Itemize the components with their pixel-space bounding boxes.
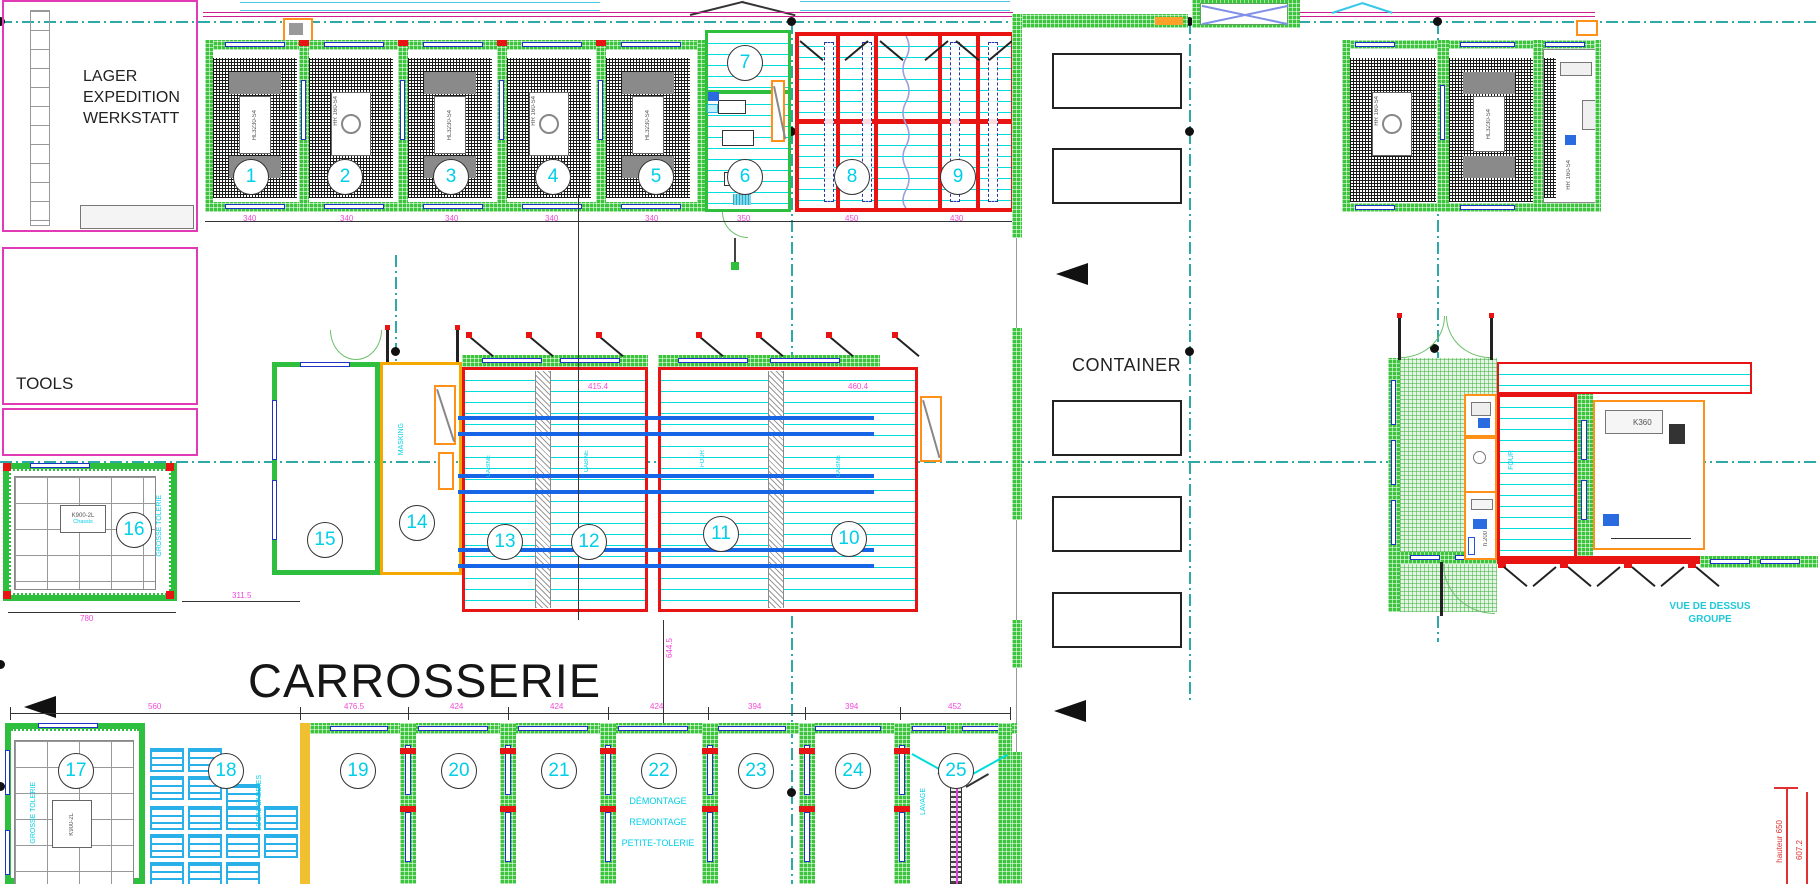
flex-wall-icon (899, 36, 913, 208)
wheel-icon (1382, 114, 1402, 134)
window (1581, 420, 1587, 460)
conveyor-rail (458, 432, 874, 436)
vehicle-lift (1463, 156, 1515, 178)
window (912, 726, 946, 731)
station-number: 11 (711, 523, 731, 545)
dimension-text: 560 (148, 703, 161, 711)
station-number: 21 (548, 760, 569, 782)
door-post-tip (385, 325, 390, 330)
printer-icon (1473, 519, 1487, 529)
station-number: 2 (340, 166, 351, 188)
door-mark (699, 336, 723, 357)
bay-25-right-wall (998, 723, 1012, 884)
wall-left (205, 40, 213, 212)
rs-wall-left (1342, 40, 1350, 212)
dimension-tick (805, 707, 806, 720)
window (1760, 559, 1800, 564)
table (80, 205, 194, 229)
workbench (438, 452, 454, 490)
dimension-text: 424 (650, 703, 663, 711)
window (1391, 500, 1396, 545)
rs-top-room (1497, 362, 1752, 394)
wall-tie (166, 591, 174, 599)
dimension-text: 340 (545, 215, 558, 223)
grid-node-dot (1185, 127, 1194, 136)
caddy-rack (150, 776, 184, 800)
station-number: 13 (494, 531, 515, 553)
vehicle-lift (229, 72, 281, 94)
panel-stand (771, 80, 785, 142)
wash-lane-grate (950, 786, 962, 884)
height-label: h.200 (1483, 531, 1489, 546)
container-box (1052, 592, 1182, 648)
caddy-rack (150, 862, 184, 884)
window (804, 812, 810, 862)
wheel-icon (539, 114, 559, 134)
fence-wall (1012, 620, 1022, 668)
caddy-rack (226, 806, 260, 830)
station-number: 18 (215, 760, 236, 782)
container-area-label: CONTAINER (1072, 355, 1181, 376)
window (1545, 42, 1585, 47)
station-25: 25 (938, 753, 974, 789)
wall-tie (702, 806, 718, 812)
station-6: 6 (727, 159, 763, 195)
wall-tie (702, 748, 718, 754)
wall-tie (596, 40, 606, 46)
door-mark (469, 336, 493, 357)
station-24: 24 (835, 753, 871, 789)
grid-node-dot (1433, 17, 1442, 26)
door-mark (1567, 566, 1591, 587)
dimension-text: 460.4 (848, 383, 868, 391)
dimension-line (8, 612, 176, 613)
room-small-wall (2, 408, 198, 456)
dimension-text: 340 (645, 215, 658, 223)
dimension-text: 424 (550, 703, 563, 711)
door-mark-tip (526, 332, 532, 338)
label-line: WERKSTATT (83, 108, 180, 129)
door-mark (1631, 566, 1655, 587)
caddy-rack (226, 834, 260, 858)
container-box (1052, 400, 1182, 456)
grid-node-dot (391, 347, 400, 356)
station-8: 8 (834, 159, 870, 195)
dimension-text-vertical: 644.5 (666, 638, 674, 658)
wheel-icon (341, 114, 361, 134)
fence-gate (1155, 17, 1183, 25)
window (330, 726, 388, 731)
lift-label: HL3230-S4 (252, 110, 258, 140)
rs-roof-equipment (1576, 20, 1598, 36)
dimension-text: 340 (340, 215, 353, 223)
dimension-text: 311.5 (232, 592, 251, 600)
window (1581, 480, 1587, 520)
door-leaf (734, 238, 736, 264)
desk (1560, 62, 1592, 76)
area-title-carrosserie: CARROSSERIE (248, 653, 601, 708)
zone-label-grosse-tolerie: GROSSE TOLERIE (156, 495, 163, 557)
station-13: 13 (487, 524, 523, 560)
station-number: 24 (842, 760, 863, 782)
equipment-item-dark (1669, 424, 1685, 444)
dimension-text-hauteur: hauteur 650 (1776, 820, 1784, 863)
window (272, 400, 277, 460)
station-number: 22 (648, 760, 669, 782)
lift-label: HR 160-S4 (333, 96, 339, 126)
dimension-line (205, 221, 1015, 222)
bench-diagonal (923, 400, 941, 458)
dimension-line-red (1786, 787, 1788, 884)
rs-mid-wall (1577, 394, 1593, 560)
station-number: 25 (945, 760, 966, 782)
grid-node-dot (0, 660, 5, 669)
caddy-rack (150, 748, 184, 772)
wall-tie (600, 806, 616, 812)
station-12: 12 (571, 524, 607, 560)
vehicle-lift (424, 72, 476, 94)
dimension-text: 394 (845, 703, 858, 711)
station-number: 1 (246, 166, 257, 188)
locker (1468, 537, 1475, 555)
dimension-tick (708, 707, 709, 720)
floor-plan: LAGER EXPEDITION WERKSTATT TOOLS HL32 (0, 0, 1818, 884)
window (30, 463, 90, 468)
section-line (663, 620, 664, 730)
fence-gate-line (1016, 668, 1017, 752)
dimension-line (182, 601, 300, 602)
window (5, 830, 10, 875)
window (423, 42, 483, 47)
lift-label: HL3230-S4 (645, 110, 651, 140)
rs-caption-line1: VUE DE DESSUS (1662, 602, 1758, 612)
fence-wall (1012, 14, 1022, 238)
wall-tie (799, 748, 815, 754)
dimension-tick (900, 707, 901, 720)
post-yellow (300, 723, 310, 884)
room-label-tools: TOOLS (16, 374, 73, 394)
zone-label-four: FOUR (1508, 450, 1515, 470)
rs-booth (1497, 394, 1577, 560)
caddy-rack (188, 862, 222, 884)
station-number: 10 (838, 528, 859, 550)
skylight-band (800, 1, 1010, 11)
rs-bay-divider (1533, 40, 1543, 212)
station-3: 3 (433, 159, 469, 195)
station-number: 9 (953, 166, 964, 188)
door-mark (759, 336, 783, 357)
station-number: 16 (123, 519, 144, 541)
dimension-tick (608, 707, 609, 720)
window (324, 42, 384, 47)
dimension-text: 350 (737, 215, 750, 223)
fence-gate-line (1016, 238, 1017, 328)
door-mark (1532, 566, 1556, 587)
fence-wall (1012, 752, 1022, 884)
door-swing-icon (330, 330, 356, 360)
lift-label: HR 160-S4 (1374, 96, 1380, 126)
dimension-tick (300, 707, 301, 720)
dimension-tick (508, 707, 509, 720)
station-20: 20 (441, 753, 477, 789)
window (1391, 440, 1396, 485)
rs-equip-room (1464, 394, 1497, 437)
station-number: 19 (347, 760, 368, 782)
station-4: 4 (535, 159, 571, 195)
station-2: 2 (327, 159, 363, 195)
label-line: EXPEDITION (83, 87, 180, 108)
wall-tie (398, 40, 408, 46)
station-16: 16 (116, 512, 152, 548)
station-14: 14 (399, 505, 435, 541)
wall-tie (166, 463, 174, 471)
printer-icon (708, 92, 719, 101)
wall-tie (400, 806, 416, 812)
equipment-box-roof (283, 18, 313, 42)
window (505, 812, 511, 862)
wall-tie (894, 748, 910, 754)
window (405, 812, 411, 862)
wall-tie (299, 40, 309, 46)
workbench (920, 396, 942, 462)
window (1460, 205, 1515, 210)
lift-label-box: HL3230-S4 (632, 96, 664, 154)
station-number: 20 (448, 760, 469, 782)
window (1460, 42, 1515, 47)
dimension-text: 430 (950, 215, 963, 223)
station-1: 1 (233, 159, 269, 195)
wall-tie (799, 806, 815, 812)
lift-label-box: HL3230-S4 (239, 96, 271, 154)
station-17: 17 (58, 753, 94, 789)
window (899, 812, 905, 862)
wall-tie (497, 40, 507, 46)
printer-icon (1478, 418, 1490, 428)
door-mark (1695, 566, 1719, 587)
door-post-tip (455, 325, 460, 330)
station-11: 11 (703, 516, 739, 552)
window (522, 42, 582, 47)
grid-node-dot (787, 17, 796, 26)
door-mark (1660, 566, 1684, 587)
window (482, 358, 542, 363)
rs-roof-panel (1200, 3, 1288, 25)
door-mark-tip (826, 332, 832, 338)
dimension-text: 340 (243, 215, 256, 223)
workbench (434, 385, 456, 445)
zone-label-cabine: CABINE (836, 455, 842, 477)
room-label-lager: LAGER EXPEDITION WERKSTATT (83, 66, 180, 129)
door-mark-tip (596, 332, 602, 338)
window (225, 204, 285, 209)
station-number: 14 (406, 512, 427, 534)
station-19: 19 (340, 753, 376, 789)
lift-label: HL3230-S4 (1486, 109, 1492, 139)
window (598, 80, 603, 140)
dimension-text: 340 (445, 215, 458, 223)
window (1355, 42, 1395, 47)
door-mark-tip (466, 332, 472, 338)
door-frame-column (824, 42, 834, 202)
rs-caption-line2: GROUPE (1662, 615, 1758, 625)
caddy-rack (264, 834, 298, 858)
station-number: 15 (314, 529, 335, 551)
chassis-bench: K900-2L (52, 800, 92, 848)
conveyor-rail (458, 416, 874, 420)
container-box (1052, 53, 1182, 109)
sink-icon (1473, 451, 1486, 464)
grid-node-dot (1185, 347, 1194, 356)
lift-label-box: HL3230-S4 (434, 96, 466, 154)
station-18: 18 (208, 753, 244, 789)
grid-axis-horizontal-top (0, 21, 1818, 23)
station-7: 7 (727, 45, 763, 81)
vehicle-lift (622, 72, 674, 94)
printer-icon (1603, 514, 1619, 526)
door-mark-tip (756, 332, 762, 338)
dimension-text-607: 607.2 (1796, 840, 1804, 860)
conveyor-rail (458, 474, 874, 478)
door-mark (599, 336, 623, 357)
equipment-label: K360 (1633, 418, 1652, 427)
door-stop (731, 262, 739, 270)
skylight-band (240, 2, 600, 11)
wall-tie (500, 748, 516, 754)
caddy-rack (150, 834, 184, 858)
fence-wall (1012, 328, 1022, 520)
equipment-sublabel: Chassis (73, 519, 93, 525)
rs-side-rooms: h.200 (1464, 437, 1497, 560)
window (418, 726, 488, 731)
station-number: 4 (548, 166, 559, 188)
dimension-text: 452 (948, 703, 961, 711)
equipment-item (1471, 402, 1491, 416)
window (621, 42, 681, 47)
window (5, 750, 10, 795)
station-21: 21 (541, 753, 577, 789)
window (770, 358, 840, 363)
window (1710, 559, 1750, 564)
dimension-line (1611, 538, 1691, 539)
zone-label-demontage: DÉMONTAGE (616, 796, 700, 806)
zone-label-remontage: REMONTAGE (616, 817, 700, 827)
grid-node-dot (787, 788, 796, 797)
device-icon (707, 104, 718, 113)
window (1440, 85, 1445, 140)
station-number: 17 (65, 760, 86, 782)
station-5: 5 (638, 159, 674, 195)
equipment-item (1471, 499, 1493, 510)
dimension-line-red (1806, 792, 1808, 884)
room-divider (1466, 491, 1495, 493)
window (499, 80, 504, 140)
zone-label-local-caddies: LOCAL CADDIES (256, 775, 263, 831)
dimension-tick (408, 707, 409, 720)
door-swing-icon (1446, 316, 1490, 358)
container-box (1052, 148, 1182, 204)
caddy-rack (226, 862, 260, 884)
floor-mat (733, 194, 751, 205)
facade-line (203, 12, 1013, 17)
dimension-text: 424 (450, 703, 463, 711)
station-number: 3 (446, 166, 457, 188)
arrow-left-icon (1056, 263, 1088, 285)
lift-label: HL3230-S4 (447, 110, 453, 140)
station-number: 23 (745, 760, 766, 782)
dimension-line (10, 713, 1010, 714)
booth-post (874, 32, 878, 212)
zone-label-grosse-tolerie: GROSSE TOLERIE (30, 782, 37, 844)
wall-tie (3, 591, 11, 599)
lift-label: HR 160-S4 (1566, 160, 1572, 190)
zone-label-petite-tolerie: PETITE-TOLERIE (612, 838, 704, 848)
grid-axis-vertical-3 (1189, 22, 1191, 702)
window (707, 812, 713, 862)
station-number: 7 (740, 52, 751, 74)
caddy-rack (150, 806, 184, 830)
dimension-text: 780 (80, 615, 93, 623)
window (560, 358, 620, 363)
station-22: 22 (641, 753, 677, 789)
wall-tie (500, 806, 516, 812)
caddy-rack (188, 806, 222, 830)
window (423, 204, 483, 209)
wall-tie (3, 463, 11, 471)
desk (722, 130, 754, 146)
chair-icon (1565, 135, 1576, 145)
rs-facade-line (1300, 12, 1595, 17)
door-mark (829, 336, 853, 357)
bench-diagonal (437, 389, 455, 442)
zone-label-cabine: CABINE (486, 455, 492, 477)
rs-office-hatch (1544, 58, 1556, 198)
window (962, 726, 1000, 731)
window (718, 726, 786, 731)
door-mark-tip (892, 332, 898, 338)
door-post (456, 328, 459, 362)
window (1391, 380, 1396, 425)
station-9: 9 (940, 159, 976, 195)
conveyor-rail (458, 564, 874, 568)
window (272, 480, 277, 540)
dimension-text: 394 (748, 703, 761, 711)
fence-gate-line (1016, 520, 1017, 620)
door-swing-icon (356, 330, 382, 360)
conveyor-rail (458, 490, 874, 494)
station-15: 15 (307, 522, 343, 558)
lift-label-box: HL3230-S4 (1473, 96, 1505, 152)
door-mark (529, 336, 553, 357)
rs-k360-room: K360 (1593, 400, 1705, 550)
door-mark-tip (696, 332, 702, 338)
equipment-label: K900-2L (69, 813, 75, 836)
station-number: 12 (578, 531, 599, 553)
desk (718, 100, 746, 114)
window (301, 80, 306, 140)
door-post (386, 328, 389, 362)
zone-label-four: FOUR (700, 450, 706, 467)
label-line: LAGER (83, 66, 180, 87)
window (400, 80, 405, 140)
window (518, 726, 588, 731)
wall-tie (894, 806, 910, 812)
equipment-item (289, 23, 303, 35)
door-mark (895, 336, 919, 357)
vehicle-lift (1463, 72, 1515, 94)
door-post (1490, 316, 1493, 360)
caddy-rack (188, 834, 222, 858)
station-number: 8 (847, 166, 858, 188)
